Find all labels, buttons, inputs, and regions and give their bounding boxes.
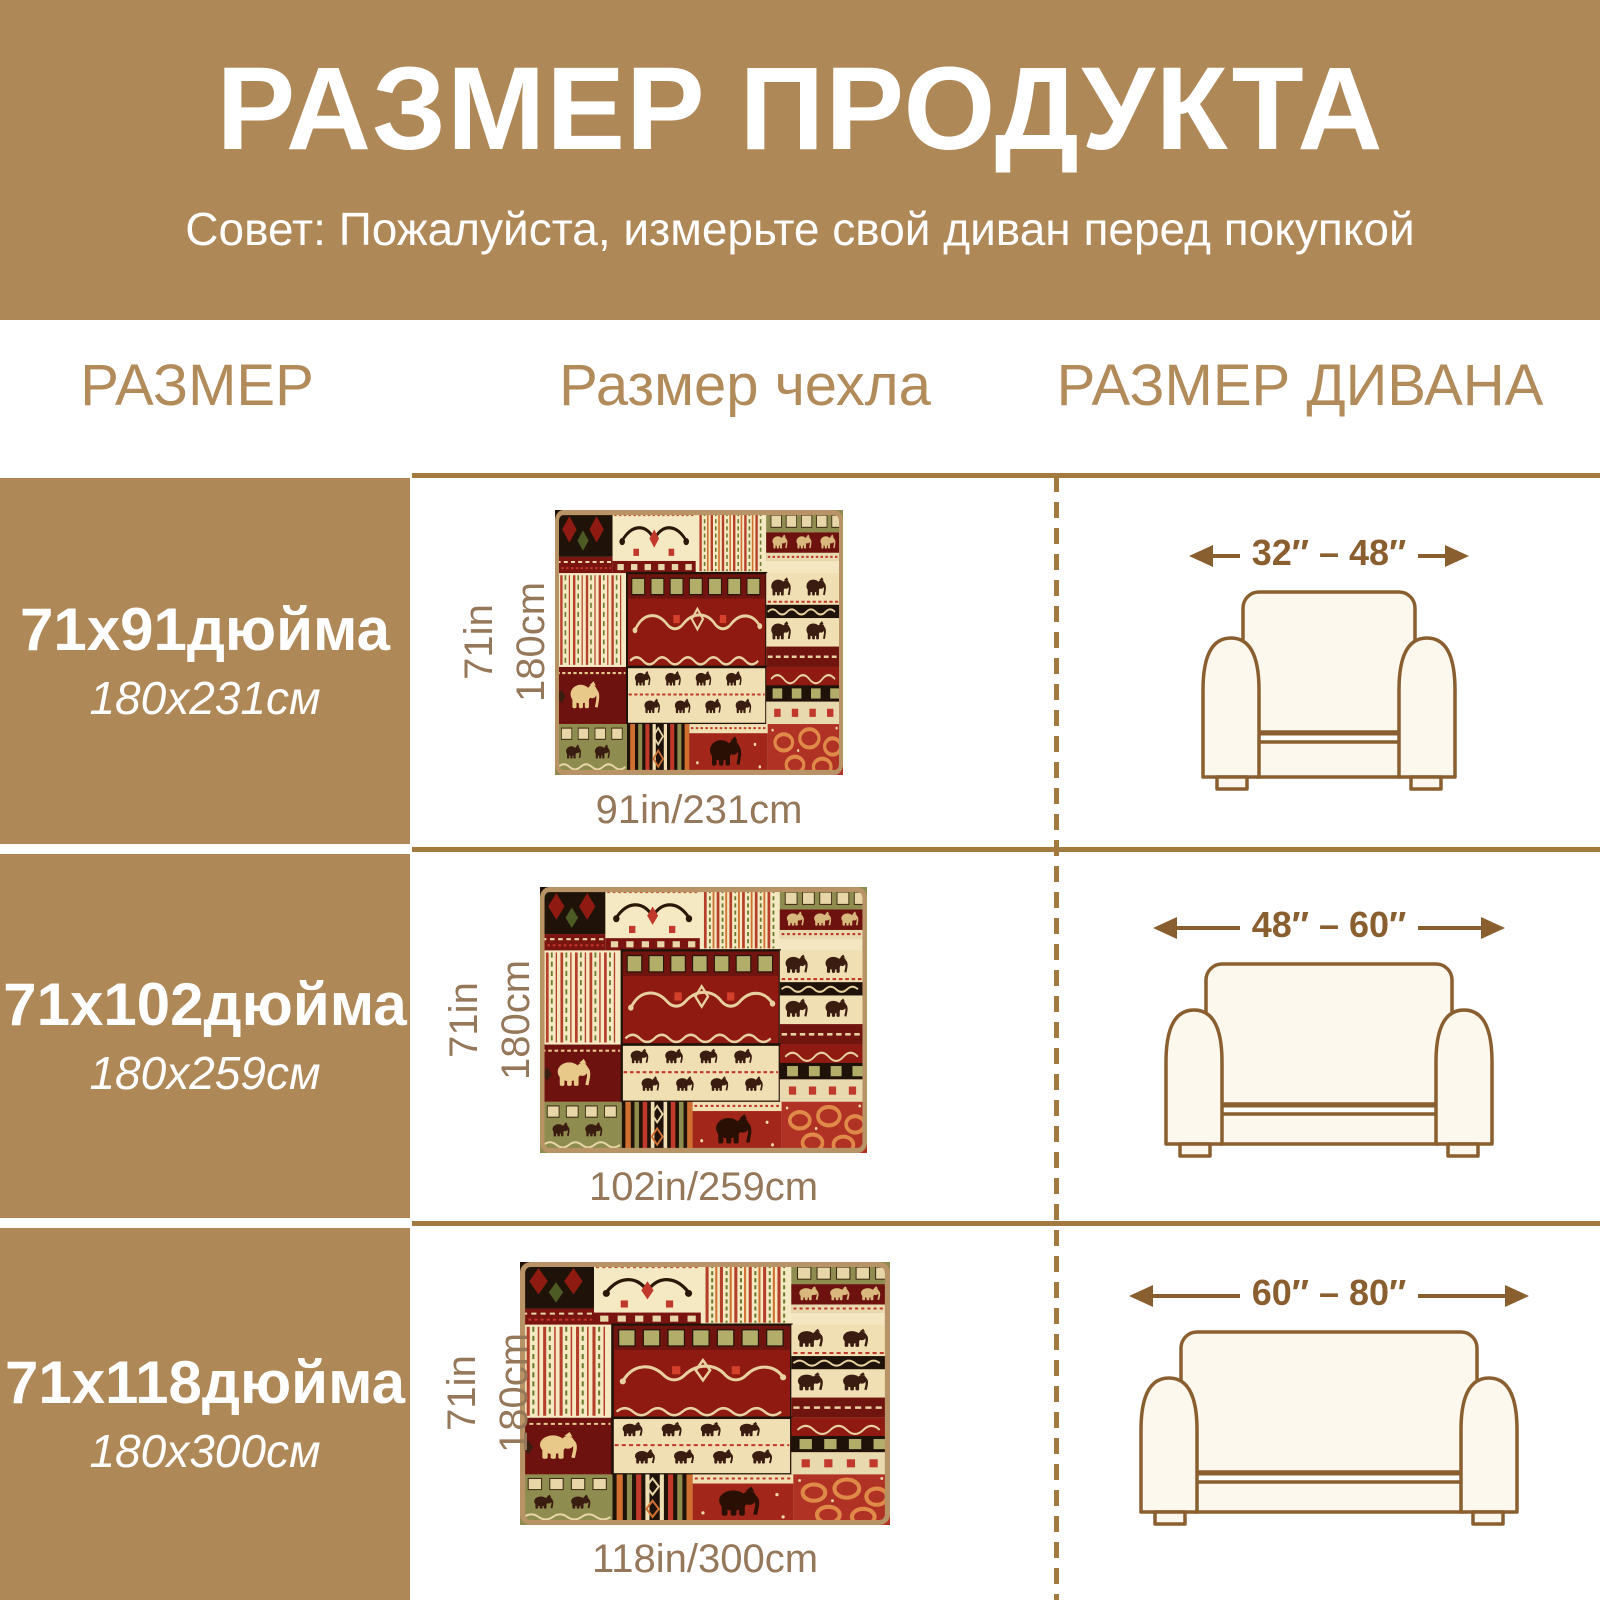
size-inches-label: 71x118дюйма bbox=[5, 1350, 405, 1416]
width-range-text: 60″ – 80″ bbox=[1252, 1272, 1407, 1314]
arrow-right-icon bbox=[1445, 545, 1469, 567]
height-inches: 71in bbox=[438, 982, 490, 1058]
size-cm-label: 180x300см bbox=[89, 1424, 320, 1478]
size-label-cell-row1: 71x91дюйма 180x231см bbox=[0, 478, 410, 844]
height-cm: 180cm bbox=[505, 582, 557, 702]
column-header-cover-size: Размер чехла bbox=[559, 352, 931, 419]
sofa-cell-row2: 48″ – 60″ bbox=[1058, 851, 1600, 1158]
height-cm: 180cm bbox=[490, 960, 542, 1080]
sofa-cell-row3: 60″ – 80″ bbox=[1058, 1225, 1600, 1526]
size-cm-label: 180x259см bbox=[89, 1046, 320, 1100]
cover-width-label-row3: 118in/300cm bbox=[520, 1537, 890, 1582]
arrow-line bbox=[1213, 554, 1240, 558]
arrow-line bbox=[1418, 926, 1481, 930]
page-subtitle: Совет: Пожалуйста, измерьте свой диван п… bbox=[0, 202, 1600, 256]
size-chart-infographic: РАЗМЕР ПРОДУКТА Совет: Пожалуйста, измер… bbox=[0, 0, 1600, 1600]
size-label-cell-row3: 71x118дюйма 180x300см bbox=[0, 1228, 410, 1600]
width-range-arrow-row2: 48″ – 60″ bbox=[1153, 907, 1505, 949]
arrow-line bbox=[1418, 554, 1445, 558]
cover-height-label-row1: 71in 180cm bbox=[450, 562, 560, 722]
width-range-arrow-row1: 32″ – 48″ bbox=[1189, 535, 1469, 577]
sofa-cell-row1: 32″ – 48″ bbox=[1058, 477, 1600, 791]
width-range-text: 48″ – 60″ bbox=[1252, 904, 1407, 946]
arrow-line bbox=[1418, 1294, 1505, 1298]
arrow-left-icon bbox=[1129, 1285, 1153, 1307]
width-range-text: 32″ – 48″ bbox=[1252, 532, 1407, 574]
fabric-swatch-image-row1 bbox=[555, 510, 843, 775]
arrow-line bbox=[1177, 926, 1240, 930]
three-seat-sofa-drawing-icon bbox=[1137, 1326, 1521, 1526]
fabric-swatch-image-row3 bbox=[520, 1262, 890, 1525]
arrow-right-icon bbox=[1505, 1285, 1529, 1307]
height-inches: 71in bbox=[436, 1355, 488, 1431]
column-header-size: РАЗМЕР bbox=[80, 352, 314, 419]
cover-height-label-row2: 71in 180cm bbox=[435, 940, 545, 1100]
height-cm: 180cm bbox=[488, 1333, 540, 1453]
cover-width-label-row2: 102in/259cm bbox=[540, 1165, 867, 1210]
size-inches-label: 71x102дюйма bbox=[3, 972, 406, 1038]
arrow-right-icon bbox=[1481, 917, 1505, 939]
cover-height-label-row3: 71in 180cm bbox=[433, 1313, 543, 1473]
page-title: РАЗМЕР ПРОДУКТА bbox=[0, 0, 1600, 168]
arrow-left-icon bbox=[1153, 917, 1177, 939]
arrow-line bbox=[1153, 1294, 1240, 1298]
size-cm-label: 180x231см bbox=[89, 671, 320, 725]
fabric-swatch-image-row2 bbox=[540, 887, 867, 1153]
size-inches-label: 71x91дюйма bbox=[20, 597, 390, 663]
cover-width-label-row1: 91in/231cm bbox=[555, 788, 843, 833]
arrow-left-icon bbox=[1189, 545, 1213, 567]
header-band: РАЗМЕР ПРОДУКТА Совет: Пожалуйста, измер… bbox=[0, 0, 1600, 320]
armchair-drawing-icon bbox=[1199, 586, 1459, 791]
loveseat-drawing-icon bbox=[1162, 958, 1496, 1158]
height-inches: 71in bbox=[453, 604, 505, 680]
column-header-sofa-size: РАЗМЕР ДИВАНА bbox=[1057, 352, 1544, 419]
width-range-arrow-row3: 60″ – 80″ bbox=[1129, 1275, 1529, 1317]
size-label-cell-row2: 71x102дюйма 180x259см bbox=[0, 854, 410, 1218]
